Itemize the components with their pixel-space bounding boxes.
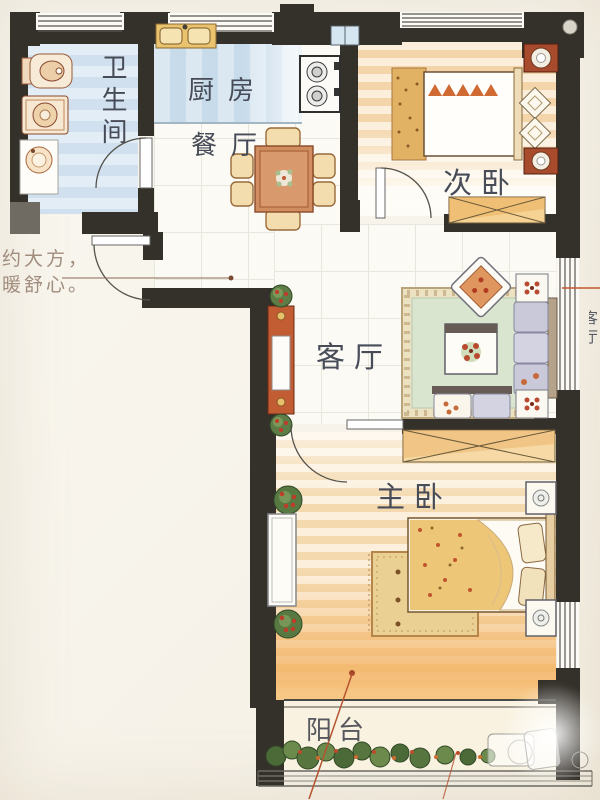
window-bathroom-top bbox=[38, 16, 122, 31]
room-label-master: 主卧 bbox=[376, 474, 452, 516]
window-living-right bbox=[560, 258, 575, 390]
room-label-dining: 餐厅 bbox=[191, 125, 271, 162]
sofa bbox=[514, 298, 557, 398]
window-bedroom2-top bbox=[402, 14, 522, 26]
room-label-bedroom2: 次卧 bbox=[443, 160, 519, 202]
right-edge-label: 客厅 bbox=[589, 310, 600, 362]
corner-ornament bbox=[563, 20, 577, 34]
tagline-line1: 约大方， bbox=[2, 247, 90, 273]
living-plant-bottom bbox=[270, 414, 292, 436]
window-kitchen-high bbox=[331, 26, 359, 45]
master-plant-top bbox=[274, 486, 302, 514]
living-plant-top bbox=[270, 285, 292, 307]
master-wardrobe bbox=[403, 430, 555, 462]
master-bed bbox=[408, 514, 555, 614]
room-label-bathroom: 卫生间 bbox=[94, 54, 131, 150]
entrance-door bbox=[92, 236, 150, 300]
bathroom-sink bbox=[20, 140, 58, 194]
coffee-table bbox=[445, 324, 497, 374]
master-plant-bottom bbox=[274, 610, 302, 638]
master-door bbox=[291, 420, 403, 482]
balcony-plants bbox=[266, 741, 495, 769]
room-label-living: 客厅 bbox=[316, 334, 392, 376]
bedroom2-door bbox=[376, 168, 431, 218]
tv-stand bbox=[268, 306, 294, 414]
plan-graphics bbox=[0, 0, 600, 800]
floor-plan: 卫生间 厨房 餐厅 次卧 客厅 主卧 阳台 约大方， 暖舒心。 客厅 bbox=[0, 0, 600, 800]
master-dresser bbox=[268, 514, 296, 606]
tagline: 约大方， 暖舒心。 bbox=[2, 247, 90, 299]
toilet bbox=[22, 54, 72, 88]
washing-machine bbox=[22, 96, 68, 134]
room-label-balcony: 阳台 bbox=[306, 710, 370, 747]
tagline-line2: 暖舒心。 bbox=[2, 273, 90, 299]
stove bbox=[300, 56, 340, 112]
bedroom2-bed bbox=[392, 68, 551, 160]
kitchen-sink-counter bbox=[156, 24, 216, 48]
window-master-right bbox=[560, 602, 575, 668]
room-label-kitchen: 厨房 bbox=[188, 70, 268, 107]
glare-spot bbox=[498, 684, 600, 784]
